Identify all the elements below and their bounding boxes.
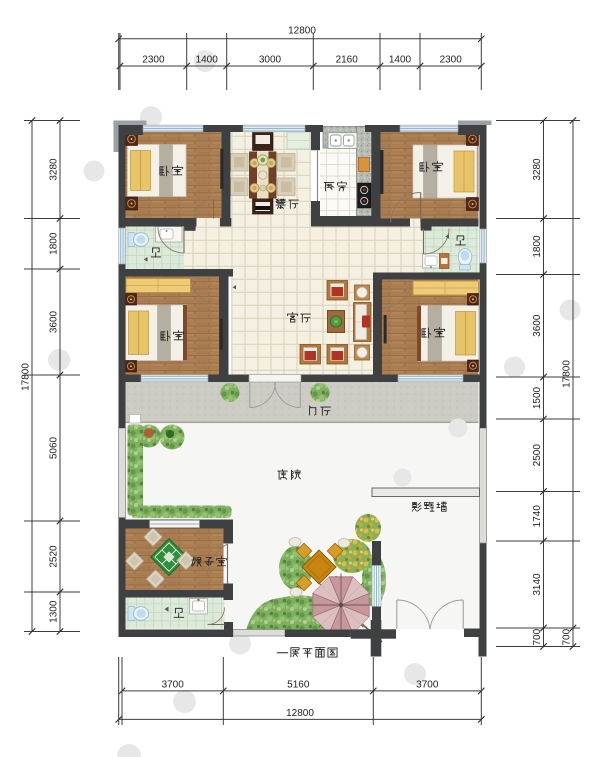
svg-text:1800: 1800 xyxy=(49,232,60,255)
svg-text:17800: 17800 xyxy=(562,360,573,388)
svg-text:2500: 2500 xyxy=(532,444,543,467)
svg-text:12800: 12800 xyxy=(286,708,314,719)
svg-text:1800: 1800 xyxy=(532,235,543,258)
svg-text:3600: 3600 xyxy=(49,310,60,333)
svg-text:17800: 17800 xyxy=(21,363,32,391)
svg-text:1300: 1300 xyxy=(49,600,60,623)
svg-text:2300: 2300 xyxy=(142,55,165,66)
svg-text:5160: 5160 xyxy=(287,680,310,691)
svg-text:3000: 3000 xyxy=(259,55,282,66)
svg-text:1400: 1400 xyxy=(196,55,219,66)
svg-text:2520: 2520 xyxy=(49,545,60,568)
svg-text:700: 700 xyxy=(532,628,543,645)
svg-text:3140: 3140 xyxy=(532,573,543,596)
svg-text:3280: 3280 xyxy=(49,158,60,181)
svg-text:3700: 3700 xyxy=(162,680,185,691)
svg-text:2160: 2160 xyxy=(336,55,359,66)
svg-text:3600: 3600 xyxy=(532,314,543,337)
svg-text:3700: 3700 xyxy=(416,680,439,691)
svg-text:700: 700 xyxy=(562,628,573,645)
svg-text:2300: 2300 xyxy=(440,55,463,66)
svg-text:1500: 1500 xyxy=(532,386,543,409)
svg-text:1400: 1400 xyxy=(389,55,412,66)
svg-text:3280: 3280 xyxy=(532,158,543,181)
svg-text:1740: 1740 xyxy=(532,505,543,528)
svg-text:12800: 12800 xyxy=(288,26,316,37)
svg-text:5060: 5060 xyxy=(49,436,60,459)
